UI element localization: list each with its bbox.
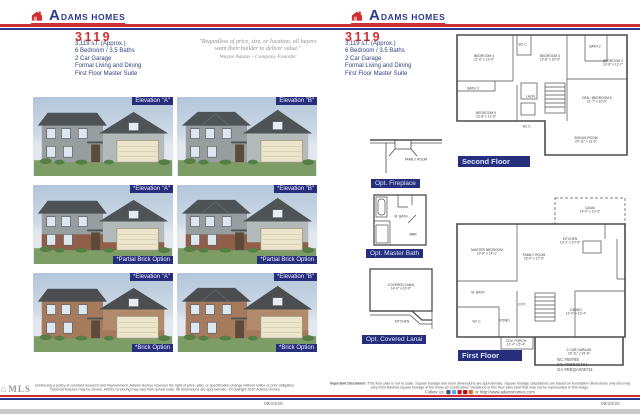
second-floor-plan: BEDROOM 411'-0" x 13'-0"W.I.C.BEDROOM 31… bbox=[455, 33, 635, 157]
logo-text: DAMS HOMES bbox=[381, 12, 446, 22]
room-label: W.I.C. bbox=[519, 44, 528, 48]
quote-text: "Regardless of price, size, or location,… bbox=[196, 39, 320, 53]
logo-initial: A bbox=[369, 9, 380, 22]
license-numbers: NC #59785 SC #RBB22464 GA #RBQA005711 bbox=[557, 358, 637, 379]
equal-housing-icon: ⌂ bbox=[1, 384, 7, 394]
opt-fireplace-label: Opt. Fireplace bbox=[371, 179, 420, 188]
elevation-label: *Elevation "B" bbox=[274, 185, 317, 193]
room-label: LAUN. bbox=[526, 96, 536, 100]
spec-line: Formal Living and Dining bbox=[75, 63, 141, 70]
room-label: DINING12'-0" x 12'-4" bbox=[565, 308, 585, 315]
room-label: BEDROOM 213'-8" x 11'-7" bbox=[603, 59, 623, 66]
brochure-spread: A DAMS HOMES 3119 3,119 s.f. (Approx.) 6… bbox=[0, 0, 640, 414]
twitter-icon bbox=[452, 390, 456, 394]
pinterest-icon bbox=[463, 390, 467, 394]
room-label: FOY. bbox=[518, 303, 525, 307]
mls-logo: ⌂MLS bbox=[1, 384, 31, 394]
elevation-b-rendering: Elevation "B" bbox=[177, 97, 317, 176]
logo-initial: A bbox=[49, 9, 60, 22]
room-label: FAMILY ROOM16'-4" x 17'-0" bbox=[523, 253, 546, 260]
room-label: BATH 2 bbox=[590, 45, 601, 49]
left-page-date: 09/10/20 bbox=[264, 402, 283, 407]
spec-line: First Floor Master Suite bbox=[345, 71, 411, 78]
room-label: 2 CAR GARAGE20'-11" x 19'-8" bbox=[567, 348, 592, 355]
first-floor-drawing bbox=[455, 195, 635, 367]
elevation-label: Elevation "A" bbox=[132, 97, 173, 105]
opt-covered-lanai-label: Opt. Covered Lanai bbox=[362, 335, 426, 344]
opt-covered-lanai-diagram: COVERED LANAI14'-0" x 10'-0"KITCHEN bbox=[368, 267, 434, 331]
option-label: *Brick Option bbox=[132, 344, 173, 352]
footer-rule bbox=[0, 395, 640, 400]
elevation-b-partial-brick-rendering: *Elevation "B" *Partial Brick Option bbox=[177, 185, 317, 264]
elevation-label: *Elevation "B" bbox=[274, 273, 317, 281]
room-label: M. BATH bbox=[395, 215, 408, 219]
disclaimer-lead: Important Disclaimer: bbox=[330, 382, 367, 386]
spec-line: 3,119 s.f. (Approx.) bbox=[75, 41, 141, 48]
page-edge bbox=[0, 409, 640, 414]
room-label: KITCHEN bbox=[395, 320, 409, 324]
mls-logo-text: MLS bbox=[8, 384, 31, 394]
spec-line: 6 Bedroom / 3.5 Baths bbox=[345, 48, 411, 55]
option-label: *Brick Option bbox=[276, 344, 317, 352]
fireplace-plan-drawing bbox=[366, 133, 446, 177]
elevation-a-rendering: Elevation "A" bbox=[33, 97, 173, 176]
room-label: MASTER BEDROOM13'-8" x 14'-1" bbox=[472, 248, 504, 255]
opt-master-bath-label: Opt. Master Bath bbox=[366, 249, 423, 258]
room-label: DEN / BEDROOM 611'-7" x 10'-0" bbox=[582, 96, 612, 103]
adams-homes-logo: A DAMS HOMES bbox=[31, 7, 125, 25]
spec-line: 3,119 s.f. (Approx.) bbox=[345, 41, 411, 48]
elevation-label: *Elevation "A" bbox=[130, 273, 173, 281]
elevation-a-brick-rendering: *Elevation "A" *Brick Option bbox=[33, 273, 173, 352]
room-label: BEDROOM 411'-0" x 13'-0" bbox=[474, 54, 494, 61]
option-label: *Partial Brick Option bbox=[257, 256, 317, 264]
disclaimer-body: This floor plan is not to scale. Square … bbox=[367, 382, 631, 390]
spec-line: First Floor Master Suite bbox=[75, 71, 141, 78]
spec-line: 2 Car Garage bbox=[75, 56, 141, 63]
elevation-b-brick-rendering: *Elevation "B" *Brick Option bbox=[177, 273, 317, 352]
license-line: GA #RBQA005711 bbox=[557, 368, 637, 373]
room-label: MBR bbox=[410, 233, 417, 237]
elevation-label: Elevation "B" bbox=[276, 97, 317, 105]
spec-line: 6 Bedroom / 3.5 Baths bbox=[75, 48, 141, 55]
quote-attribution: Wayne Adams - Company Founder bbox=[196, 54, 320, 60]
instagram-icon bbox=[469, 390, 473, 394]
room-label: W.I.C. bbox=[523, 125, 532, 129]
spec-line: Formal Living and Dining bbox=[345, 63, 411, 70]
house-icon bbox=[351, 9, 368, 22]
house-rendering bbox=[177, 97, 317, 176]
youtube-icon bbox=[458, 390, 462, 394]
room-label: BATH 3 bbox=[467, 87, 478, 91]
logo-text: DAMS HOMES bbox=[61, 12, 126, 22]
spec-line: 2 Car Garage bbox=[345, 56, 411, 63]
room-label: COVERED LANAI14'-0" x 10'-0" bbox=[388, 284, 415, 291]
house-icon bbox=[31, 9, 48, 22]
house-rendering bbox=[33, 185, 173, 264]
adams-homes-logo: A DAMS HOMES bbox=[351, 7, 445, 25]
master-bath-plan-drawing bbox=[372, 193, 428, 247]
facebook-icon bbox=[447, 390, 451, 394]
room-label: BONUS ROOM20'-11" x 13'-0" bbox=[575, 136, 598, 143]
founder-quote: "Regardless of price, size, or location,… bbox=[196, 39, 320, 60]
opt-fireplace-diagram: FAMILY ROOM bbox=[366, 133, 446, 177]
opt-master-bath-diagram: M. BATHMBR bbox=[372, 193, 428, 247]
house-rendering bbox=[33, 273, 173, 352]
plan-specs: 3,119 s.f. (Approx.) 6 Bedroom / 3.5 Bat… bbox=[75, 41, 141, 78]
house-rendering bbox=[177, 273, 317, 352]
right-page-date: 09/10/20 bbox=[601, 402, 620, 407]
option-label: *Partial Brick Option bbox=[113, 256, 173, 264]
plan-specs: 3,119 s.f. (Approx.) 6 Bedroom / 3.5 Bat… bbox=[345, 41, 411, 78]
room-label: LANAI14'-0" x 10'-0" bbox=[580, 207, 600, 214]
room-label: W.I.C. bbox=[472, 320, 481, 324]
room-label: BEDROOM 513'-8" x 11'-8" bbox=[476, 111, 496, 118]
second-floor-label: Second Floor bbox=[458, 156, 530, 167]
house-rendering bbox=[33, 97, 173, 176]
elevation-a-partial-brick-rendering: *Elevation "A" *Partial Brick Option bbox=[33, 185, 173, 264]
room-label: COV. PORCH11'-4" x 5'-4" bbox=[506, 339, 527, 346]
room-label: POWD. bbox=[500, 319, 511, 323]
house-rendering bbox=[177, 185, 317, 264]
first-floor-plan: LANAI14'-0" x 10'-0"MASTER BEDROOM13'-8"… bbox=[455, 195, 635, 367]
first-floor-label: First Floor bbox=[458, 350, 522, 361]
room-label: FAMILY ROOM bbox=[404, 158, 427, 162]
room-label: BEDROOM 313'-8" x 10'-0" bbox=[540, 54, 560, 61]
room-label: M. BATH bbox=[472, 291, 485, 295]
room-label: KITCHEN13'-2" x 10'-9" bbox=[560, 238, 580, 245]
second-floor-drawing bbox=[455, 33, 635, 157]
elevation-label: *Elevation "A" bbox=[130, 185, 173, 193]
